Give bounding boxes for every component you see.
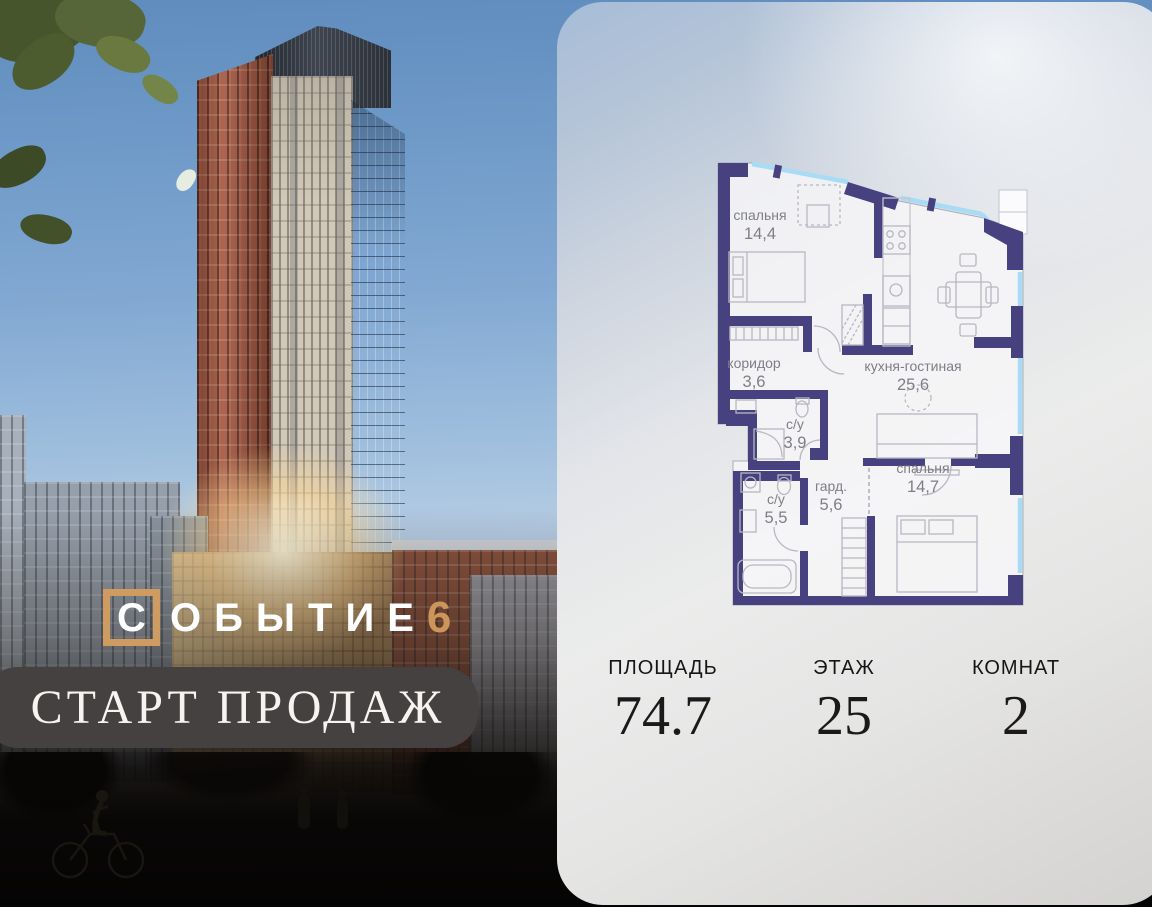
svg-text:коридор: коридор	[727, 355, 781, 371]
svg-text:с/у: с/у	[786, 416, 804, 432]
floor-plan: спальня14,4коридор3,6кухня-гостиная25,6с…	[690, 148, 1046, 624]
apartment-card: спальня14,4коридор3,6кухня-гостиная25,6с…	[557, 2, 1152, 905]
logo-square-frame: С	[103, 589, 160, 646]
svg-text:с/у: с/у	[767, 491, 785, 507]
stat-floor-label: ЭТАЖ	[759, 657, 929, 680]
sales-start-text: СТАРТ ПРОДАЖ	[17, 680, 446, 735]
stat-floor-value: 25	[759, 688, 929, 744]
stat-rooms-label: КОМНАТ	[931, 657, 1101, 680]
svg-text:25,6: 25,6	[897, 376, 929, 394]
sales-start-banner: СТАРТ ПРОДАЖ	[0, 667, 478, 748]
stat-rooms: КОМНАТ 2	[931, 657, 1101, 744]
logo-boxed-letter: С	[117, 598, 146, 638]
floor-plan-svg: спальня14,4коридор3,6кухня-гостиная25,6с…	[690, 148, 1046, 624]
svg-text:спальня: спальня	[733, 207, 786, 223]
pedestrian-silhouettes	[290, 782, 380, 852]
stat-area: ПЛОЩАДЬ 74.7	[578, 657, 748, 744]
stat-area-value: 74.7	[578, 688, 748, 744]
stat-rooms-value: 2	[931, 688, 1101, 744]
svg-text:3,6: 3,6	[743, 373, 766, 391]
stats-row: ПЛОЩАДЬ 74.7 ЭТАЖ 25 КОМНАТ 2	[557, 657, 1117, 777]
svg-text:5,6: 5,6	[820, 496, 843, 514]
svg-text:3,9: 3,9	[784, 434, 807, 452]
stat-area-label: ПЛОЩАДЬ	[578, 657, 748, 680]
svg-text:кухня-гостиная: кухня-гостиная	[864, 358, 961, 374]
svg-text:14,7: 14,7	[907, 478, 939, 496]
svg-text:5,5: 5,5	[765, 509, 788, 527]
project-logo: С ОБЫТИЕ 6	[103, 589, 451, 646]
svg-text:спальня: спальня	[896, 460, 949, 476]
svg-text:14,4: 14,4	[744, 225, 776, 243]
svg-text:гард.: гард.	[815, 478, 847, 494]
logo-wordmark: ОБЫТИЕ	[170, 598, 427, 638]
promo-screenshot: С ОБЫТИЕ 6 СТАРТ ПРОДАЖ	[0, 0, 1152, 907]
stat-floor: ЭТАЖ 25	[759, 657, 929, 744]
logo-number: 6	[427, 596, 451, 640]
cyclist-silhouette	[38, 772, 168, 887]
